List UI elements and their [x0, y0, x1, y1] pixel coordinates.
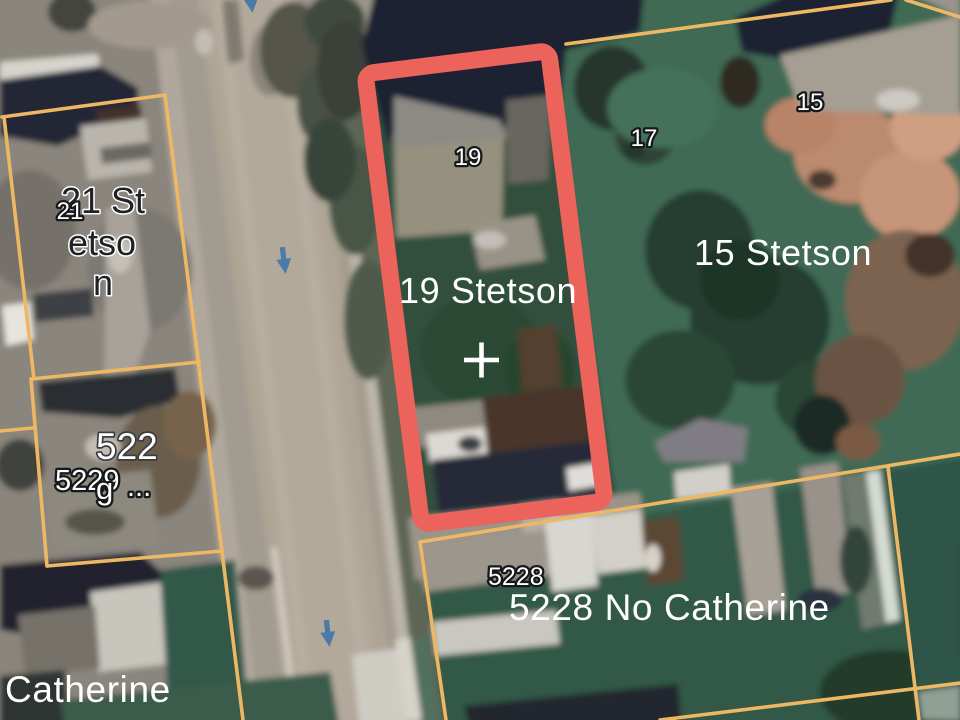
svg-text:19 Stetson: 19 Stetson [399, 270, 577, 311]
svg-text:g: g [96, 471, 113, 506]
svg-text:19: 19 [455, 144, 482, 171]
svg-text:15: 15 [797, 89, 824, 116]
svg-text:15 Stetson: 15 Stetson [694, 232, 872, 273]
svg-text:522: 522 [96, 426, 158, 467]
svg-text:17: 17 [631, 125, 658, 152]
svg-text:5228 No Catherine: 5228 No Catherine [509, 587, 830, 628]
svg-text:n: n [93, 262, 113, 303]
svg-text:Catherine: Catherine [5, 669, 171, 710]
svg-text:etso: etso [68, 222, 136, 263]
svg-text:...: ... [127, 471, 151, 503]
svg-text:21: 21 [57, 198, 84, 225]
